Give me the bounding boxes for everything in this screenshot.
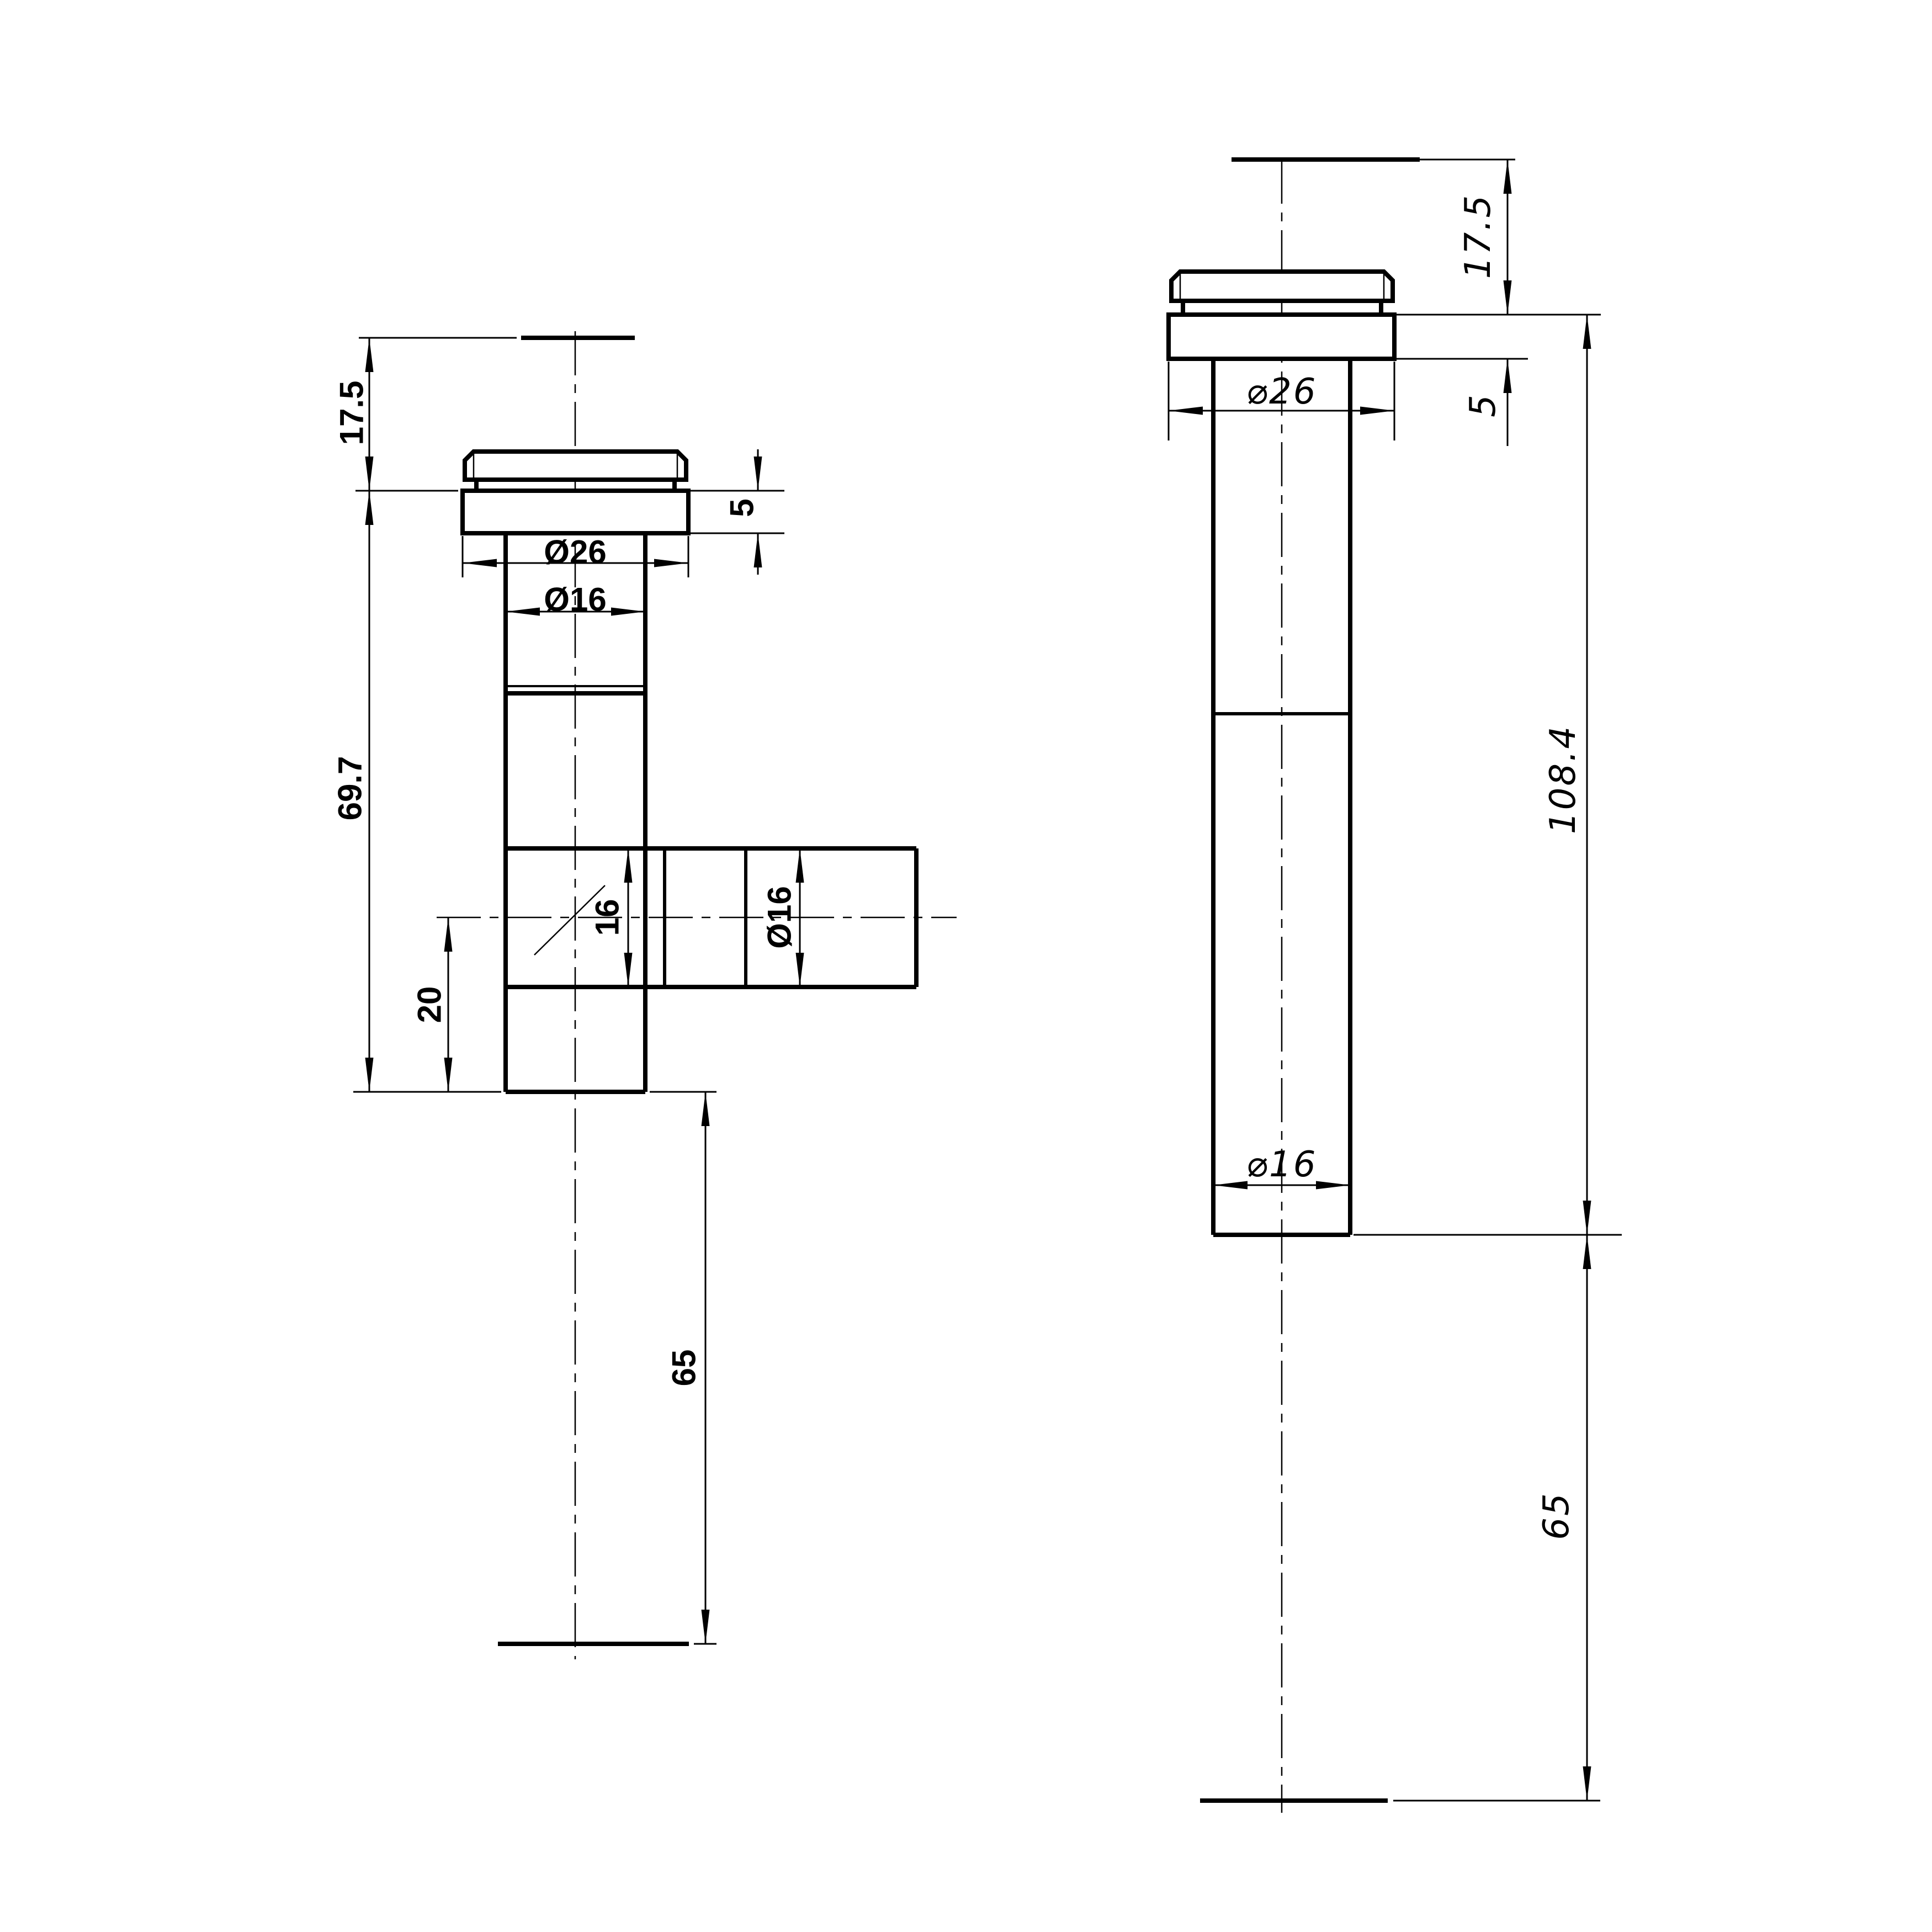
side-dim-label-pipe-diameter: ⌀16 (1246, 1144, 1318, 1185)
front-dim-label-pipe-diameter: Ø16 (544, 581, 606, 618)
front-view-dimensions: 17.5 69.7 5 Ø26 Ø16 16 Ø1 (332, 338, 800, 1644)
front-dim-label-flange-diameter: Ø26 (544, 534, 606, 571)
front-cap-outline (465, 452, 686, 480)
cad-technical-drawing: 17.5 69.7 5 Ø26 Ø16 16 Ø1 (0, 0, 1932, 1932)
front-dim-label-outlet-extension: 65 (666, 1350, 703, 1387)
front-dim-label-top-offset: 17.5 (333, 381, 370, 445)
front-dim-label-body-length: 69.7 (332, 756, 369, 821)
front-view-outline (463, 452, 916, 1644)
front-dim-label-branch-bore: 16 (589, 899, 626, 936)
side-dim-label-outlet-extension: 65 (1536, 1492, 1577, 1540)
front-dim-label-branch-offset: 20 (411, 986, 448, 1023)
side-view: 17.5 5 ⌀26 108.4 ⌀16 65 (1169, 160, 1622, 1813)
side-view-dimensions: 17.5 5 ⌀26 108.4 ⌀16 65 (1169, 160, 1622, 1801)
side-cap-outline (1171, 272, 1393, 301)
side-dim-label-top-offset: 17.5 (1458, 194, 1499, 279)
side-dim-label-flange-diameter: ⌀26 (1246, 371, 1318, 412)
side-dim-label-flange-thickness: 5 (1463, 393, 1504, 417)
side-flange (1169, 315, 1394, 359)
side-dim-label-overall-length: 108.4 (1543, 725, 1584, 834)
front-flange (463, 491, 688, 533)
front-view: 17.5 69.7 5 Ø26 Ø16 16 Ø1 (332, 331, 957, 1659)
front-dim-label-flange-thickness: 5 (724, 498, 761, 517)
front-dim-label-branch-diameter: Ø16 (761, 886, 798, 948)
side-view-outline (1169, 272, 1600, 1801)
